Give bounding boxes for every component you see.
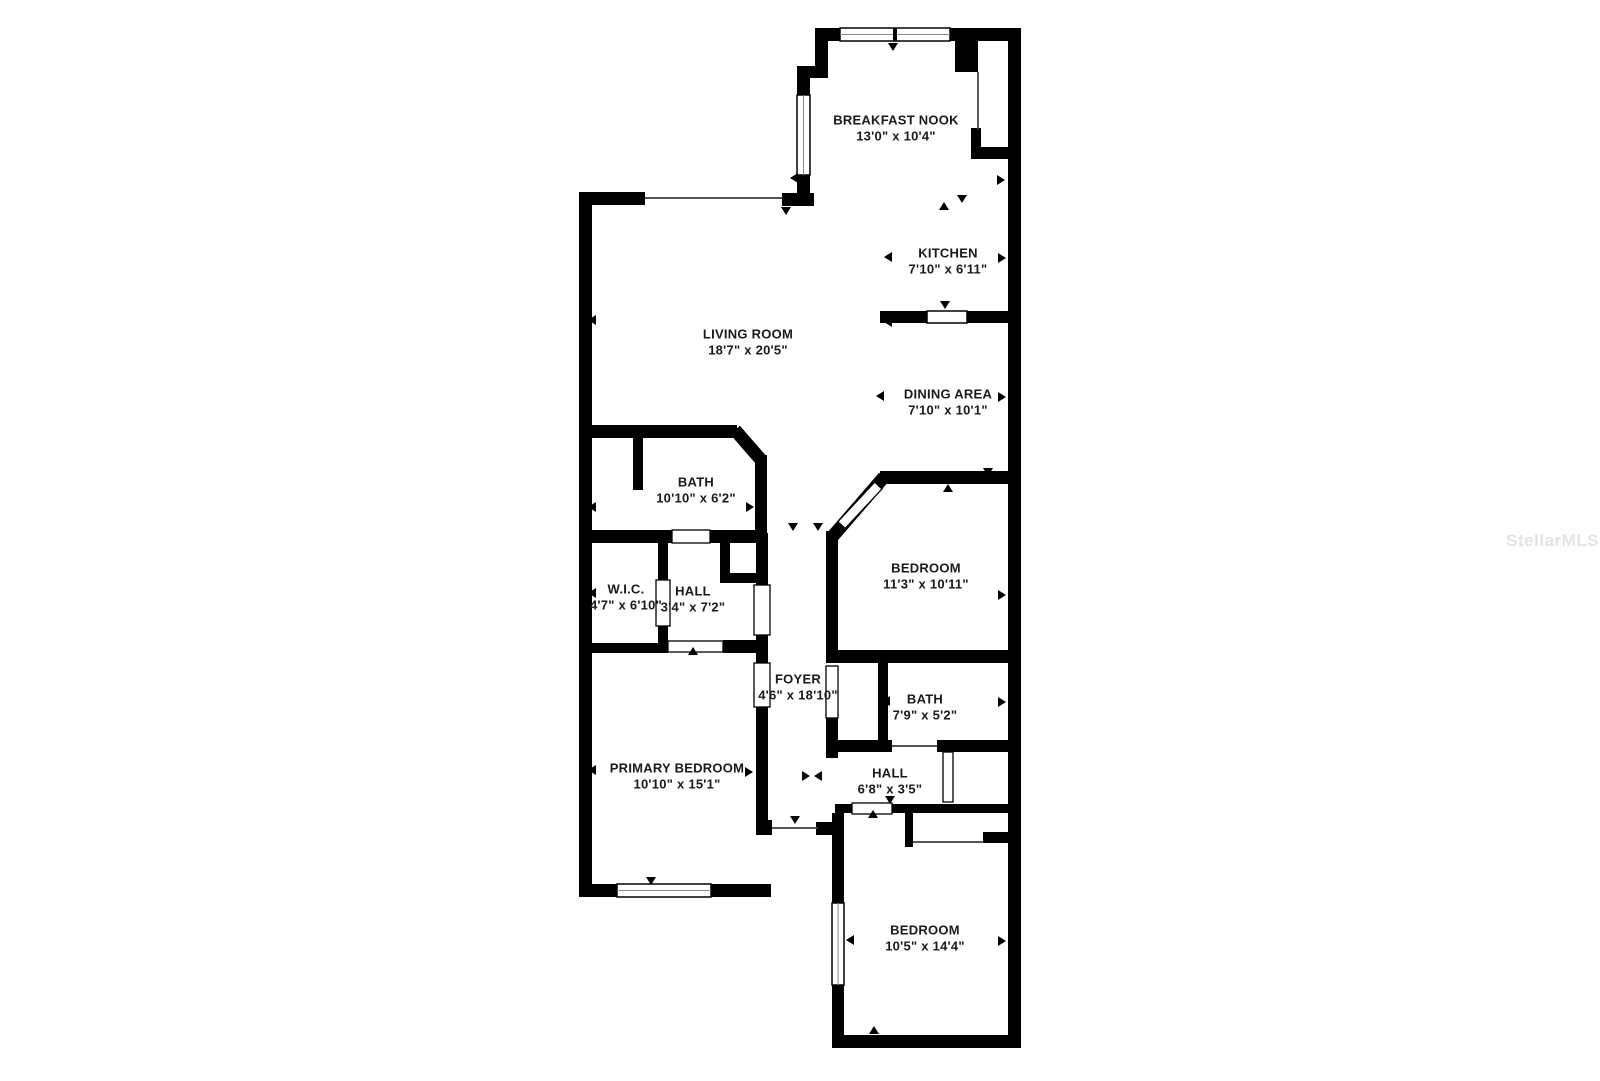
wall-segment xyxy=(832,1035,1021,1048)
room-dims: 4'7" x 6'10" xyxy=(590,597,662,613)
wall-segment xyxy=(756,820,772,835)
room-dims: 7'10" x 10'1" xyxy=(904,402,992,418)
wall-segment xyxy=(579,192,592,897)
wall-segment xyxy=(756,635,768,663)
room-name: DINING AREA xyxy=(904,387,992,403)
wall-segment xyxy=(826,650,1008,663)
room-name: BEDROOM xyxy=(883,561,969,577)
wall-segment xyxy=(826,718,838,740)
floor-plan-drawing xyxy=(0,0,1600,1081)
room-dims: 18'7" x 20'5" xyxy=(703,342,793,358)
room-name: HALL xyxy=(661,584,726,600)
room-name: HALL xyxy=(858,766,923,782)
room-name: BATH xyxy=(893,692,958,708)
wall-segment xyxy=(835,804,852,813)
wall-segment xyxy=(658,626,668,653)
room-dims: 10'5" x 14'4" xyxy=(885,938,965,954)
wall-segment xyxy=(967,311,1008,323)
wall-segment xyxy=(710,530,756,543)
wall-segment xyxy=(905,804,913,847)
door-bath-lower xyxy=(943,752,953,802)
wall-segment xyxy=(971,147,1012,159)
wall-segment xyxy=(658,533,668,580)
room-label-bath-lower: BATH 7'9" x 5'2" xyxy=(893,692,958,723)
room-dims: 6'8" x 3'5" xyxy=(858,781,923,797)
room-label-kitchen: KITCHEN 7'10" x 6'11" xyxy=(909,246,988,277)
door-hall-upper xyxy=(754,585,770,635)
room-name: BEDROOM xyxy=(885,923,965,939)
room-name: BREAKFAST NOOK xyxy=(833,113,959,129)
room-dims: 7'10" x 6'11" xyxy=(909,261,988,277)
wall-segment xyxy=(633,432,643,490)
room-label-bedroom-middle: BEDROOM 11'3" x 10'11" xyxy=(883,561,969,592)
room-name: LIVING ROOM xyxy=(703,327,793,343)
watermark-text: StellarMLS xyxy=(1506,531,1599,551)
wall-segment xyxy=(816,822,834,835)
wall-segment xyxy=(755,455,767,538)
window-divider xyxy=(893,28,897,41)
kitchen-pass-through-counter xyxy=(927,311,967,323)
door-primary-top xyxy=(668,641,723,652)
room-name: W.I.C. xyxy=(590,582,662,598)
wall-segment xyxy=(756,533,768,585)
room-label-bedroom-lower: BEDROOM 10'5" x 14'4" xyxy=(885,923,965,954)
room-dims: 11'3" x 10'11" xyxy=(883,576,969,592)
room-name: PRIMARY BEDROOM xyxy=(610,761,744,777)
room-dims: 13'0" x 10'4" xyxy=(833,128,959,144)
wall-segment-diagonal xyxy=(735,430,762,461)
room-dims: 10'10" x 15'1" xyxy=(610,776,744,792)
wall-segment xyxy=(983,832,1008,843)
room-label-dining-area: DINING AREA 7'10" x 10'1" xyxy=(904,387,992,418)
door-bedroom-middle xyxy=(838,482,882,528)
door-bath-upper xyxy=(672,530,710,543)
room-dims: 10'10" x 6'2" xyxy=(656,490,736,506)
floor-plan-canvas: BREAKFAST NOOK 13'0" x 10'4" KITCHEN 7'1… xyxy=(0,0,1600,1081)
wall-segment xyxy=(955,41,978,72)
room-label-hall-upper: HALL 3'4" x 7'2" xyxy=(661,584,726,615)
wall-segment xyxy=(756,707,768,827)
wall-segment xyxy=(782,193,814,206)
room-name: BATH xyxy=(656,475,736,491)
room-label-hall-lower: HALL 6'8" x 3'5" xyxy=(858,766,923,797)
room-label-primary-bedroom: PRIMARY BEDROOM 10'10" x 15'1" xyxy=(610,761,744,792)
wall-segment xyxy=(1008,28,1021,1048)
room-label-breakfast-nook: BREAKFAST NOOK 13'0" x 10'4" xyxy=(833,113,959,144)
room-dims: 3'4" x 7'2" xyxy=(661,599,726,615)
room-name: FOYER xyxy=(758,672,838,688)
room-dims: 4'6" x 18'10" xyxy=(758,687,838,703)
wall-segment xyxy=(913,804,1008,813)
room-label-wic: W.I.C. 4'7" x 6'10" xyxy=(590,582,662,613)
wall-segment xyxy=(585,643,658,653)
room-label-bath-upper: BATH 10'10" x 6'2" xyxy=(656,475,736,506)
room-dims: 7'9" x 5'2" xyxy=(893,707,958,723)
room-label-living-room: LIVING ROOM 18'7" x 20'5" xyxy=(703,327,793,358)
doors-group xyxy=(645,72,983,842)
room-label-foyer: FOYER 4'6" x 18'10" xyxy=(758,672,838,703)
wall-segment xyxy=(826,740,838,758)
wall-segment xyxy=(937,740,1008,752)
room-name: KITCHEN xyxy=(909,246,988,262)
